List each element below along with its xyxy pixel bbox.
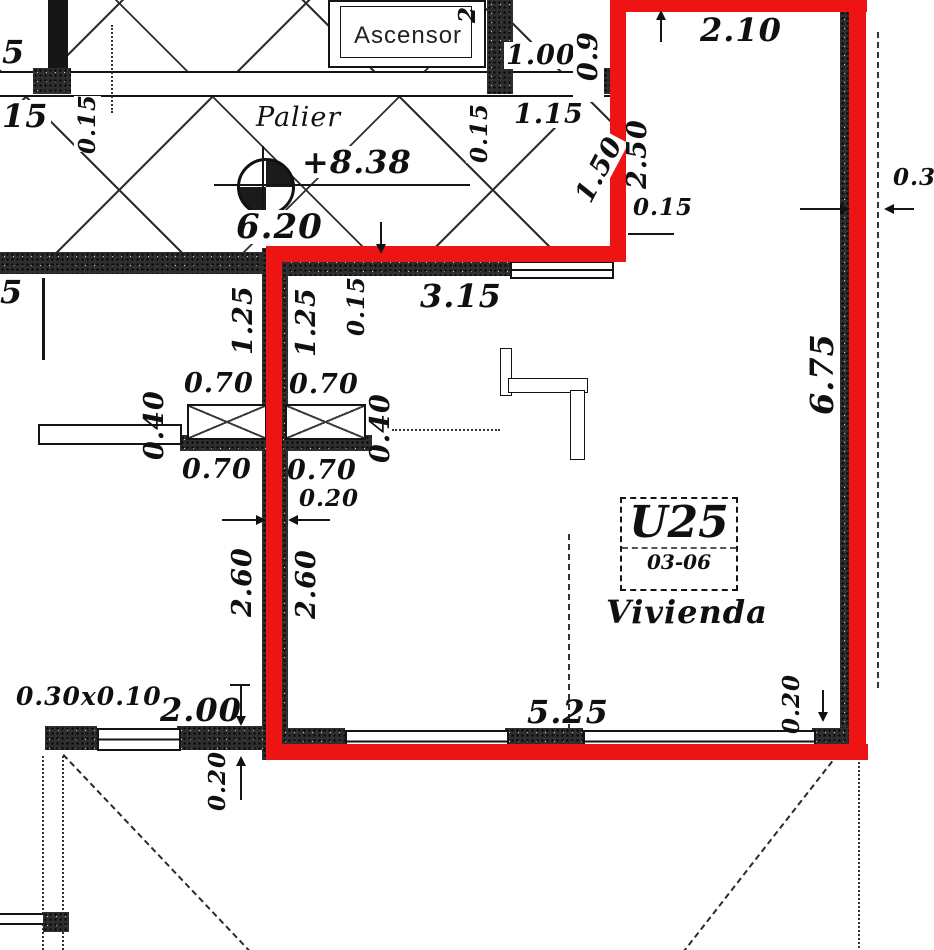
unit-outline-upper [268, 246, 626, 262]
wall-topleft-vertical [48, 0, 68, 70]
unit-outline-right [849, 0, 866, 758]
dim-edge-mid-5: 5 [0, 276, 23, 308]
dim-210: 2.10 [700, 14, 782, 46]
dim-070-bl: 0.70 [182, 456, 252, 483]
dim-200: 2.00 [160, 694, 242, 726]
arrow-rightwall-line-a [800, 208, 844, 210]
ascensor-label: Ascensor [354, 24, 462, 48]
dim-edge-top-5: 5 [0, 36, 27, 68]
dim-675: 6.75 [806, 326, 838, 422]
dim-015-mid: 0.15 [466, 103, 493, 163]
dim-09: 0.9 [573, 10, 604, 102]
dim-03: 0.3 [893, 166, 934, 189]
window-unit-top [510, 261, 614, 279]
dim-260-left: 2.60 [229, 540, 256, 624]
dim-525: 5.25 [527, 696, 609, 728]
property-line-right [877, 32, 879, 688]
dim-125-left: 1.25 [230, 283, 257, 357]
partition-dotted-line [392, 429, 500, 431]
tick-020bl-arrow [236, 756, 246, 766]
dim-315: 3.15 [420, 280, 502, 312]
tick-020br-arrow [818, 712, 828, 722]
duct-left [187, 404, 267, 440]
floor-plan: 5 15 0.15 2 1.00 0.9 1.15 0.15 1.50 Pali… [0, 0, 934, 950]
dim-070-br: 0.70 [287, 457, 357, 484]
balcony-wall-far-left [0, 913, 44, 925]
unit-id: U25 [622, 499, 736, 547]
dim-015-left: 0.15 [74, 96, 101, 152]
arrow-rightwall-head-a [840, 204, 850, 214]
dim-125-right: 1.25 [293, 285, 320, 359]
window-bottom-out [97, 728, 181, 751]
unit-type-label: Vivienda [606, 596, 768, 628]
tick-620-arrow [376, 244, 386, 254]
level-marker-hline [214, 184, 470, 186]
unit-outline-bottom [266, 744, 868, 760]
dim-015-tr: 0.15 [633, 196, 693, 219]
level-value: +8.38 [300, 146, 414, 178]
line-below-right [858, 762, 860, 948]
arrow-leftwall-head-b [288, 515, 298, 525]
dim-040-right: 0.40 [367, 394, 394, 462]
dim-100: 1.00 [504, 42, 578, 69]
unit-outline-left [266, 246, 282, 760]
arrow-leftwall-head-a [256, 515, 266, 525]
dim-edge-top-15: 15 [0, 100, 51, 132]
terrace-diagonal-right [682, 761, 833, 950]
dim-015tr-line [628, 233, 674, 235]
dim-620: 6.20 [234, 210, 325, 244]
dim-260-right: 2.60 [293, 542, 320, 626]
wall-bottom-out-1 [45, 726, 97, 750]
extension-line-top [111, 25, 113, 113]
dim-020-bl: 0.20 [206, 752, 229, 810]
dim-030x010: 0.30x0.10 [16, 684, 162, 709]
arrow-rightwall-head-b [884, 204, 894, 214]
dim-070-tr: 0.70 [289, 371, 359, 398]
dim-115: 1.15 [512, 101, 586, 128]
dim-070-tl: 0.70 [184, 370, 254, 397]
tick-210-arrow [656, 10, 666, 20]
wall-unit-top-outside [0, 252, 278, 274]
tick-200-cap [230, 684, 250, 686]
partition-stub-2 [570, 390, 585, 460]
stair-edge-line [42, 278, 45, 360]
balcony-wall-block [43, 912, 69, 932]
palier-label: Palier [254, 104, 343, 131]
wall-bottom-out-2 [177, 726, 268, 750]
unit-floor: 03-06 [622, 547, 736, 575]
duct-right [285, 404, 366, 440]
dim-015-center: 0.15 [345, 278, 368, 334]
unit-tag-box: U25 03-06 [620, 497, 738, 591]
dim-020-br: 0.20 [780, 678, 803, 730]
wall-block-left [33, 68, 71, 94]
dim-020-center: 0.20 [299, 487, 359, 510]
dim-040-left: 0.40 [141, 392, 168, 458]
dim-250: 2.50 [624, 108, 651, 200]
tick-020bl-line [240, 762, 242, 800]
